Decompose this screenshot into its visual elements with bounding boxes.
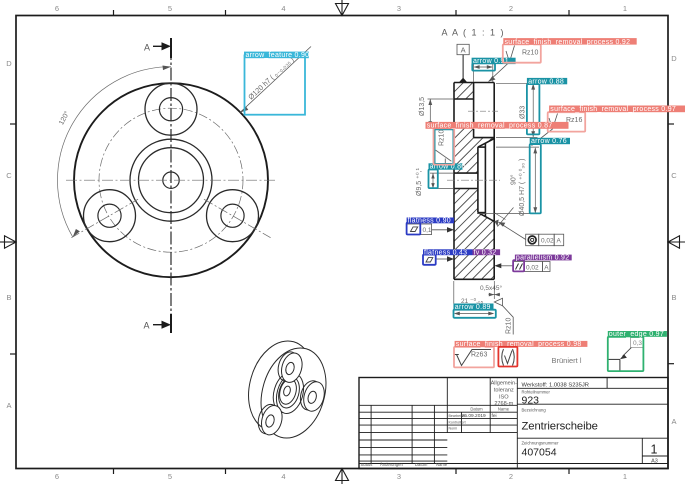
svg-text:Änderungen: Änderungen: [380, 462, 403, 467]
svg-text:Status: Status: [361, 462, 373, 467]
svg-text:A: A: [143, 321, 149, 331]
svg-text:2: 2: [509, 472, 513, 481]
svg-text:Name: Name: [436, 462, 448, 467]
svg-text:fv 0.32: fv 0.32: [474, 249, 497, 256]
svg-text:1: 1: [623, 4, 627, 13]
svg-text:Datum: Datum: [415, 462, 428, 467]
svg-text:C: C: [671, 171, 677, 180]
svg-text:Norm: Norm: [449, 427, 458, 431]
svg-text:B: B: [671, 293, 676, 302]
svg-text:D: D: [671, 54, 677, 63]
svg-text:3: 3: [397, 472, 401, 481]
svg-text:flatness 0.90: flatness 0.90: [408, 218, 451, 225]
svg-text:A A ( 1 : 1 ): A A ( 1 : 1 ): [442, 28, 506, 38]
svg-text:B: B: [6, 293, 11, 302]
svg-text:4: 4: [281, 472, 285, 481]
svg-text:1: 1: [651, 443, 658, 457]
svg-text:arrow 0.89: arrow 0.89: [455, 304, 491, 311]
svg-text:A3: A3: [651, 458, 658, 464]
svg-text:0,5x45°: 0,5x45°: [480, 284, 503, 292]
svg-text:fei: fei: [492, 413, 497, 419]
svg-text:surface_finish_removal_process: surface_finish_removal_process 0.97: [550, 106, 676, 113]
svg-text:outer_edge 0.97: outer_edge 0.97: [609, 331, 664, 338]
svg-text:arrow 0.76: arrow 0.76: [531, 138, 567, 145]
svg-text:5: 5: [168, 472, 172, 481]
svg-text:surface_finish_removal_process: surface_finish_removal_process 0.87: [427, 123, 553, 130]
svg-text:25.09.2019: 25.09.2019: [462, 413, 486, 419]
svg-text:923: 923: [522, 395, 540, 407]
svg-text:A: A: [557, 238, 562, 245]
svg-text:A: A: [6, 401, 11, 410]
svg-text:Brüniert l: Brüniert l: [552, 356, 582, 365]
svg-text:D: D: [6, 59, 12, 68]
svg-text:5: 5: [168, 4, 172, 13]
svg-text:4: 4: [281, 4, 285, 13]
svg-text:Ø13,5: Ø13,5: [419, 97, 426, 116]
svg-text:Rz10: Rz10: [506, 318, 513, 334]
svg-text:2: 2: [509, 4, 513, 13]
svg-text:407054: 407054: [522, 447, 557, 459]
svg-text:A: A: [544, 264, 549, 271]
svg-text:Kontrolliert: Kontrolliert: [449, 420, 466, 424]
svg-text:Zeichnungsnummer: Zeichnungsnummer: [522, 441, 560, 446]
svg-text:C: C: [6, 171, 12, 180]
svg-text:Name: Name: [498, 406, 510, 411]
svg-text:3: 3: [397, 4, 401, 13]
svg-text:parallelism 0.92: parallelism 0.92: [516, 255, 570, 262]
svg-text:Rz63: Rz63: [471, 352, 487, 359]
svg-text:arrow 0.88: arrow 0.88: [528, 78, 564, 85]
svg-text:6: 6: [55, 472, 59, 481]
svg-text:1: 1: [623, 472, 627, 481]
svg-text:Werkstoff: 1.0038 S235JR: Werkstoff: 1.0038 S235JR: [522, 382, 589, 388]
svg-text:90°: 90°: [510, 174, 518, 185]
svg-text:A: A: [671, 417, 676, 426]
svg-text:arrow_feature 0.90: arrow_feature 0.90: [246, 52, 310, 59]
svg-text:0,02: 0,02: [541, 238, 554, 245]
svg-text:Ø33: Ø33: [520, 106, 527, 119]
svg-text:Rz10: Rz10: [522, 50, 538, 57]
svg-text:Ø40,5 H7 ( ⁺⁰,⁰₃₀ ): Ø40,5 H7 ( ⁺⁰,⁰₃₀ ): [518, 159, 526, 216]
svg-text:Zentrierscheibe: Zentrierscheibe: [522, 421, 598, 433]
svg-text:0,3: 0,3: [633, 340, 642, 347]
svg-text:Datum: Datum: [470, 406, 483, 411]
svg-text:flatness 0.43: flatness 0.43: [424, 249, 467, 256]
svg-text:surface_finish_removal_process: surface_finish_removal_process 0.98: [456, 341, 582, 348]
svg-text:toleranz: toleranz: [494, 388, 514, 394]
svg-text:Ø9,5 ⁺⁰,¹: Ø9,5 ⁺⁰,¹: [415, 167, 423, 196]
svg-text:surface_finish_removal_process: surface_finish_removal_process 0.92: [505, 39, 631, 46]
svg-text:A: A: [144, 43, 150, 53]
svg-text:0,1: 0,1: [423, 227, 432, 234]
svg-text:0,02: 0,02: [526, 264, 539, 271]
svg-text:ISO: ISO: [499, 395, 509, 401]
svg-text:Bezeichnung: Bezeichnung: [522, 408, 547, 413]
svg-text:A: A: [461, 46, 466, 55]
svg-text:6: 6: [55, 4, 59, 13]
svg-text:Rz10: Rz10: [439, 130, 446, 146]
svg-text:Allgemein-: Allgemein-: [491, 381, 518, 387]
